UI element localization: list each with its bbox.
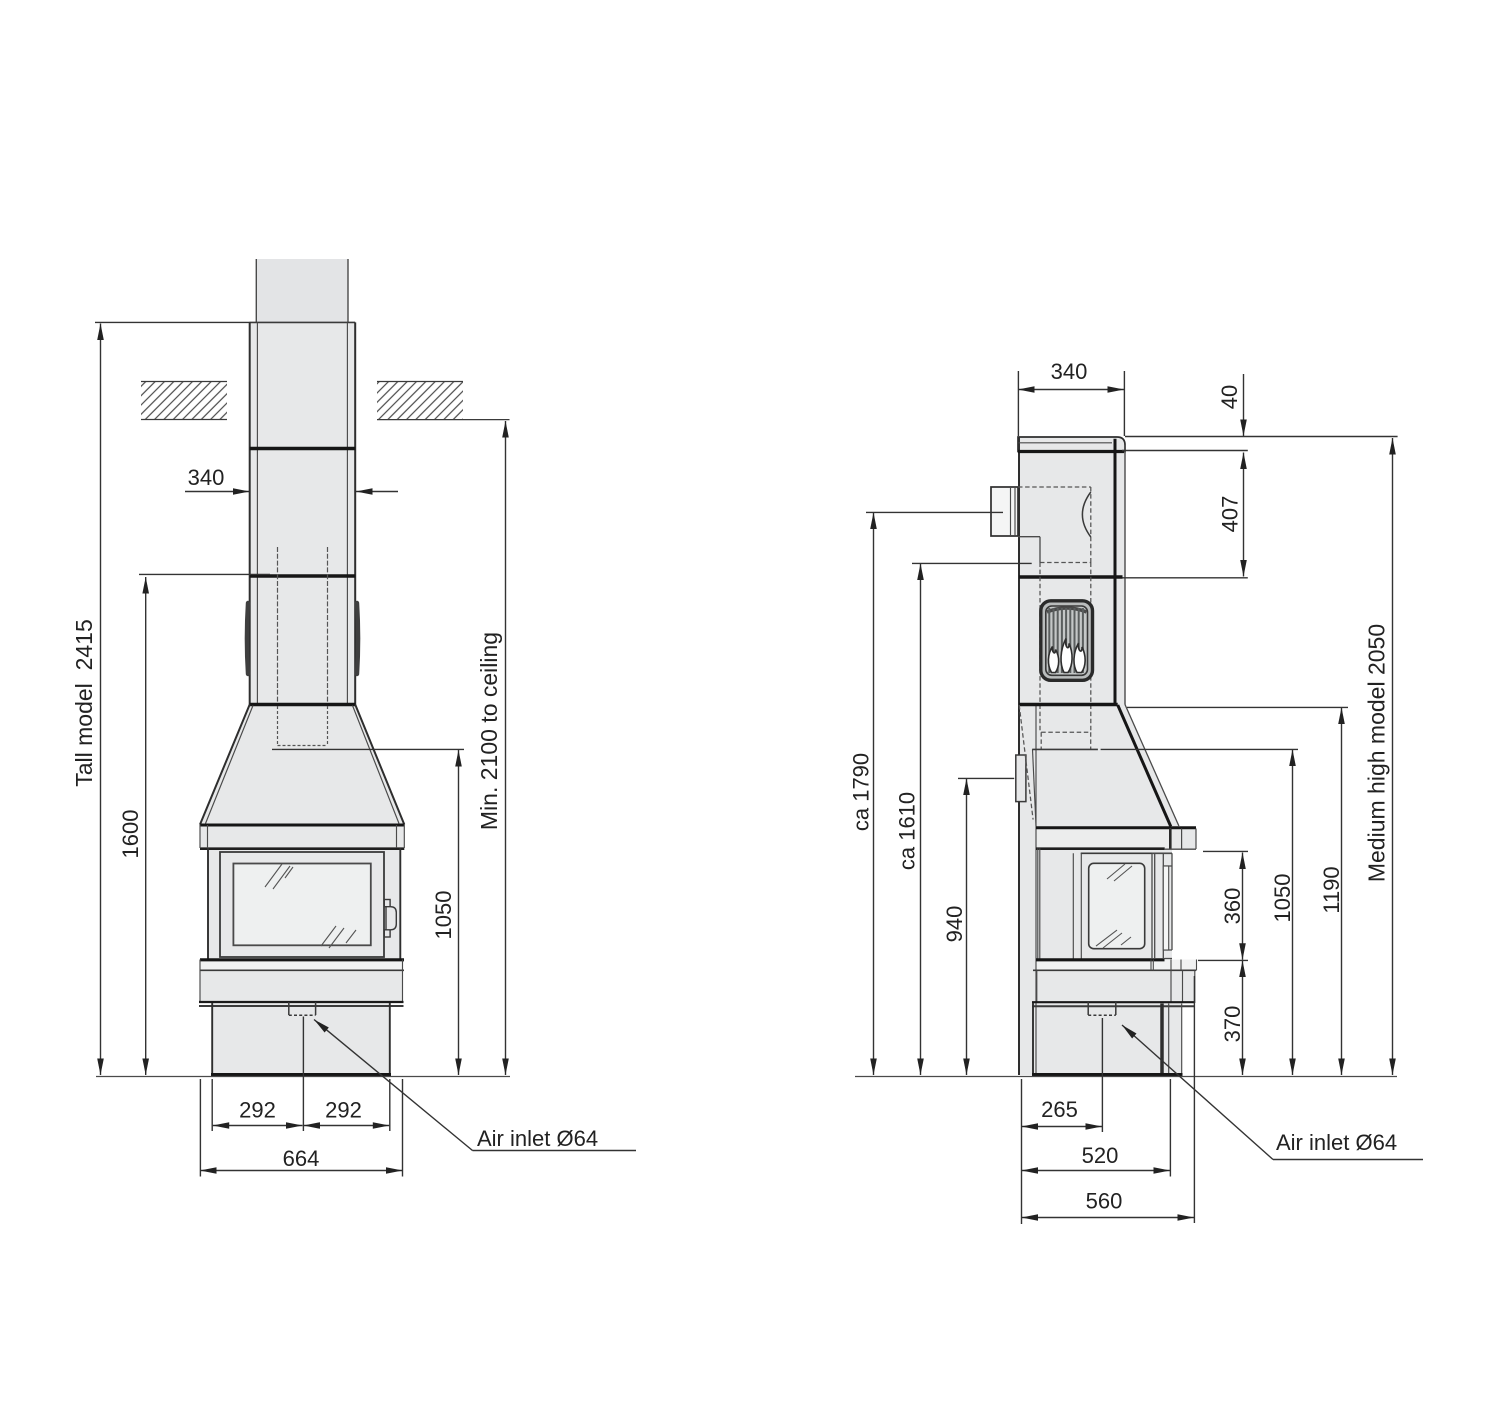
svg-text:292: 292 — [239, 1098, 276, 1123]
svg-text:1190: 1190 — [1319, 866, 1344, 913]
svg-text:664: 664 — [283, 1146, 320, 1171]
svg-text:560: 560 — [1086, 1189, 1123, 1214]
svg-text:Medium high model 2050: Medium high model 2050 — [1364, 624, 1390, 882]
svg-text:1050: 1050 — [431, 891, 456, 940]
svg-text:360: 360 — [1220, 888, 1245, 925]
svg-text:370: 370 — [1220, 1006, 1245, 1043]
svg-text:407: 407 — [1218, 496, 1243, 533]
svg-text:1600: 1600 — [118, 810, 143, 859]
svg-text:Tall model 2415: Tall model 2415 — [71, 619, 97, 787]
svg-text:265: 265 — [1041, 1097, 1078, 1122]
svg-text:ca 1790: ca 1790 — [849, 753, 874, 831]
svg-text:ca 1610: ca 1610 — [895, 792, 920, 870]
svg-text:292: 292 — [325, 1098, 362, 1123]
svg-text:Min. 2100 to ceiling: Min. 2100 to ceiling — [476, 632, 502, 830]
svg-text:340: 340 — [188, 465, 225, 490]
svg-text:940: 940 — [942, 906, 967, 943]
svg-text:Air inlet Ø64: Air inlet Ø64 — [1276, 1130, 1397, 1155]
svg-text:Air inlet Ø64: Air inlet Ø64 — [477, 1126, 598, 1151]
svg-text:520: 520 — [1082, 1143, 1119, 1168]
svg-text:40: 40 — [1217, 385, 1242, 409]
svg-text:340: 340 — [1051, 359, 1088, 384]
svg-text:1050: 1050 — [1270, 874, 1295, 923]
